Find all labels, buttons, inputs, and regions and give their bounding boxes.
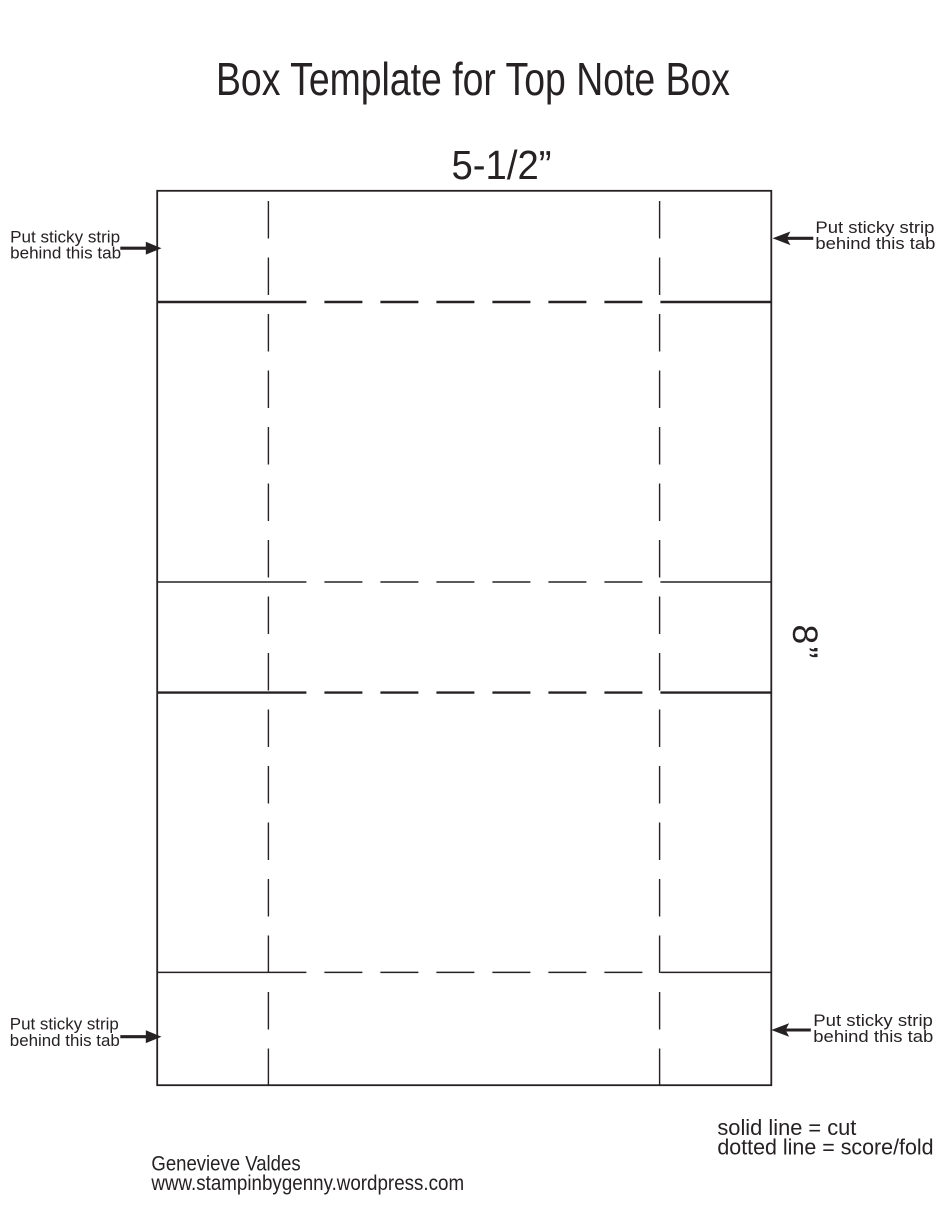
svg-text:dotted line = score/fold: dotted line = score/fold (717, 1135, 933, 1160)
svg-text:behind this tab: behind this tab (10, 1031, 120, 1050)
svg-text:Box Template for Top Note Box: Box Template for Top Note Box (216, 53, 730, 105)
svg-text:behind this tab: behind this tab (815, 234, 935, 253)
svg-text:behind this tab: behind this tab (10, 244, 121, 263)
svg-text:5-1/2”: 5-1/2” (452, 142, 552, 188)
svg-text:8”: 8” (785, 625, 825, 659)
svg-text:behind this tab: behind this tab (813, 1027, 933, 1046)
svg-text:www.stampinbygenny.wordpress.c: www.stampinbygenny.wordpress.com (151, 1171, 465, 1195)
